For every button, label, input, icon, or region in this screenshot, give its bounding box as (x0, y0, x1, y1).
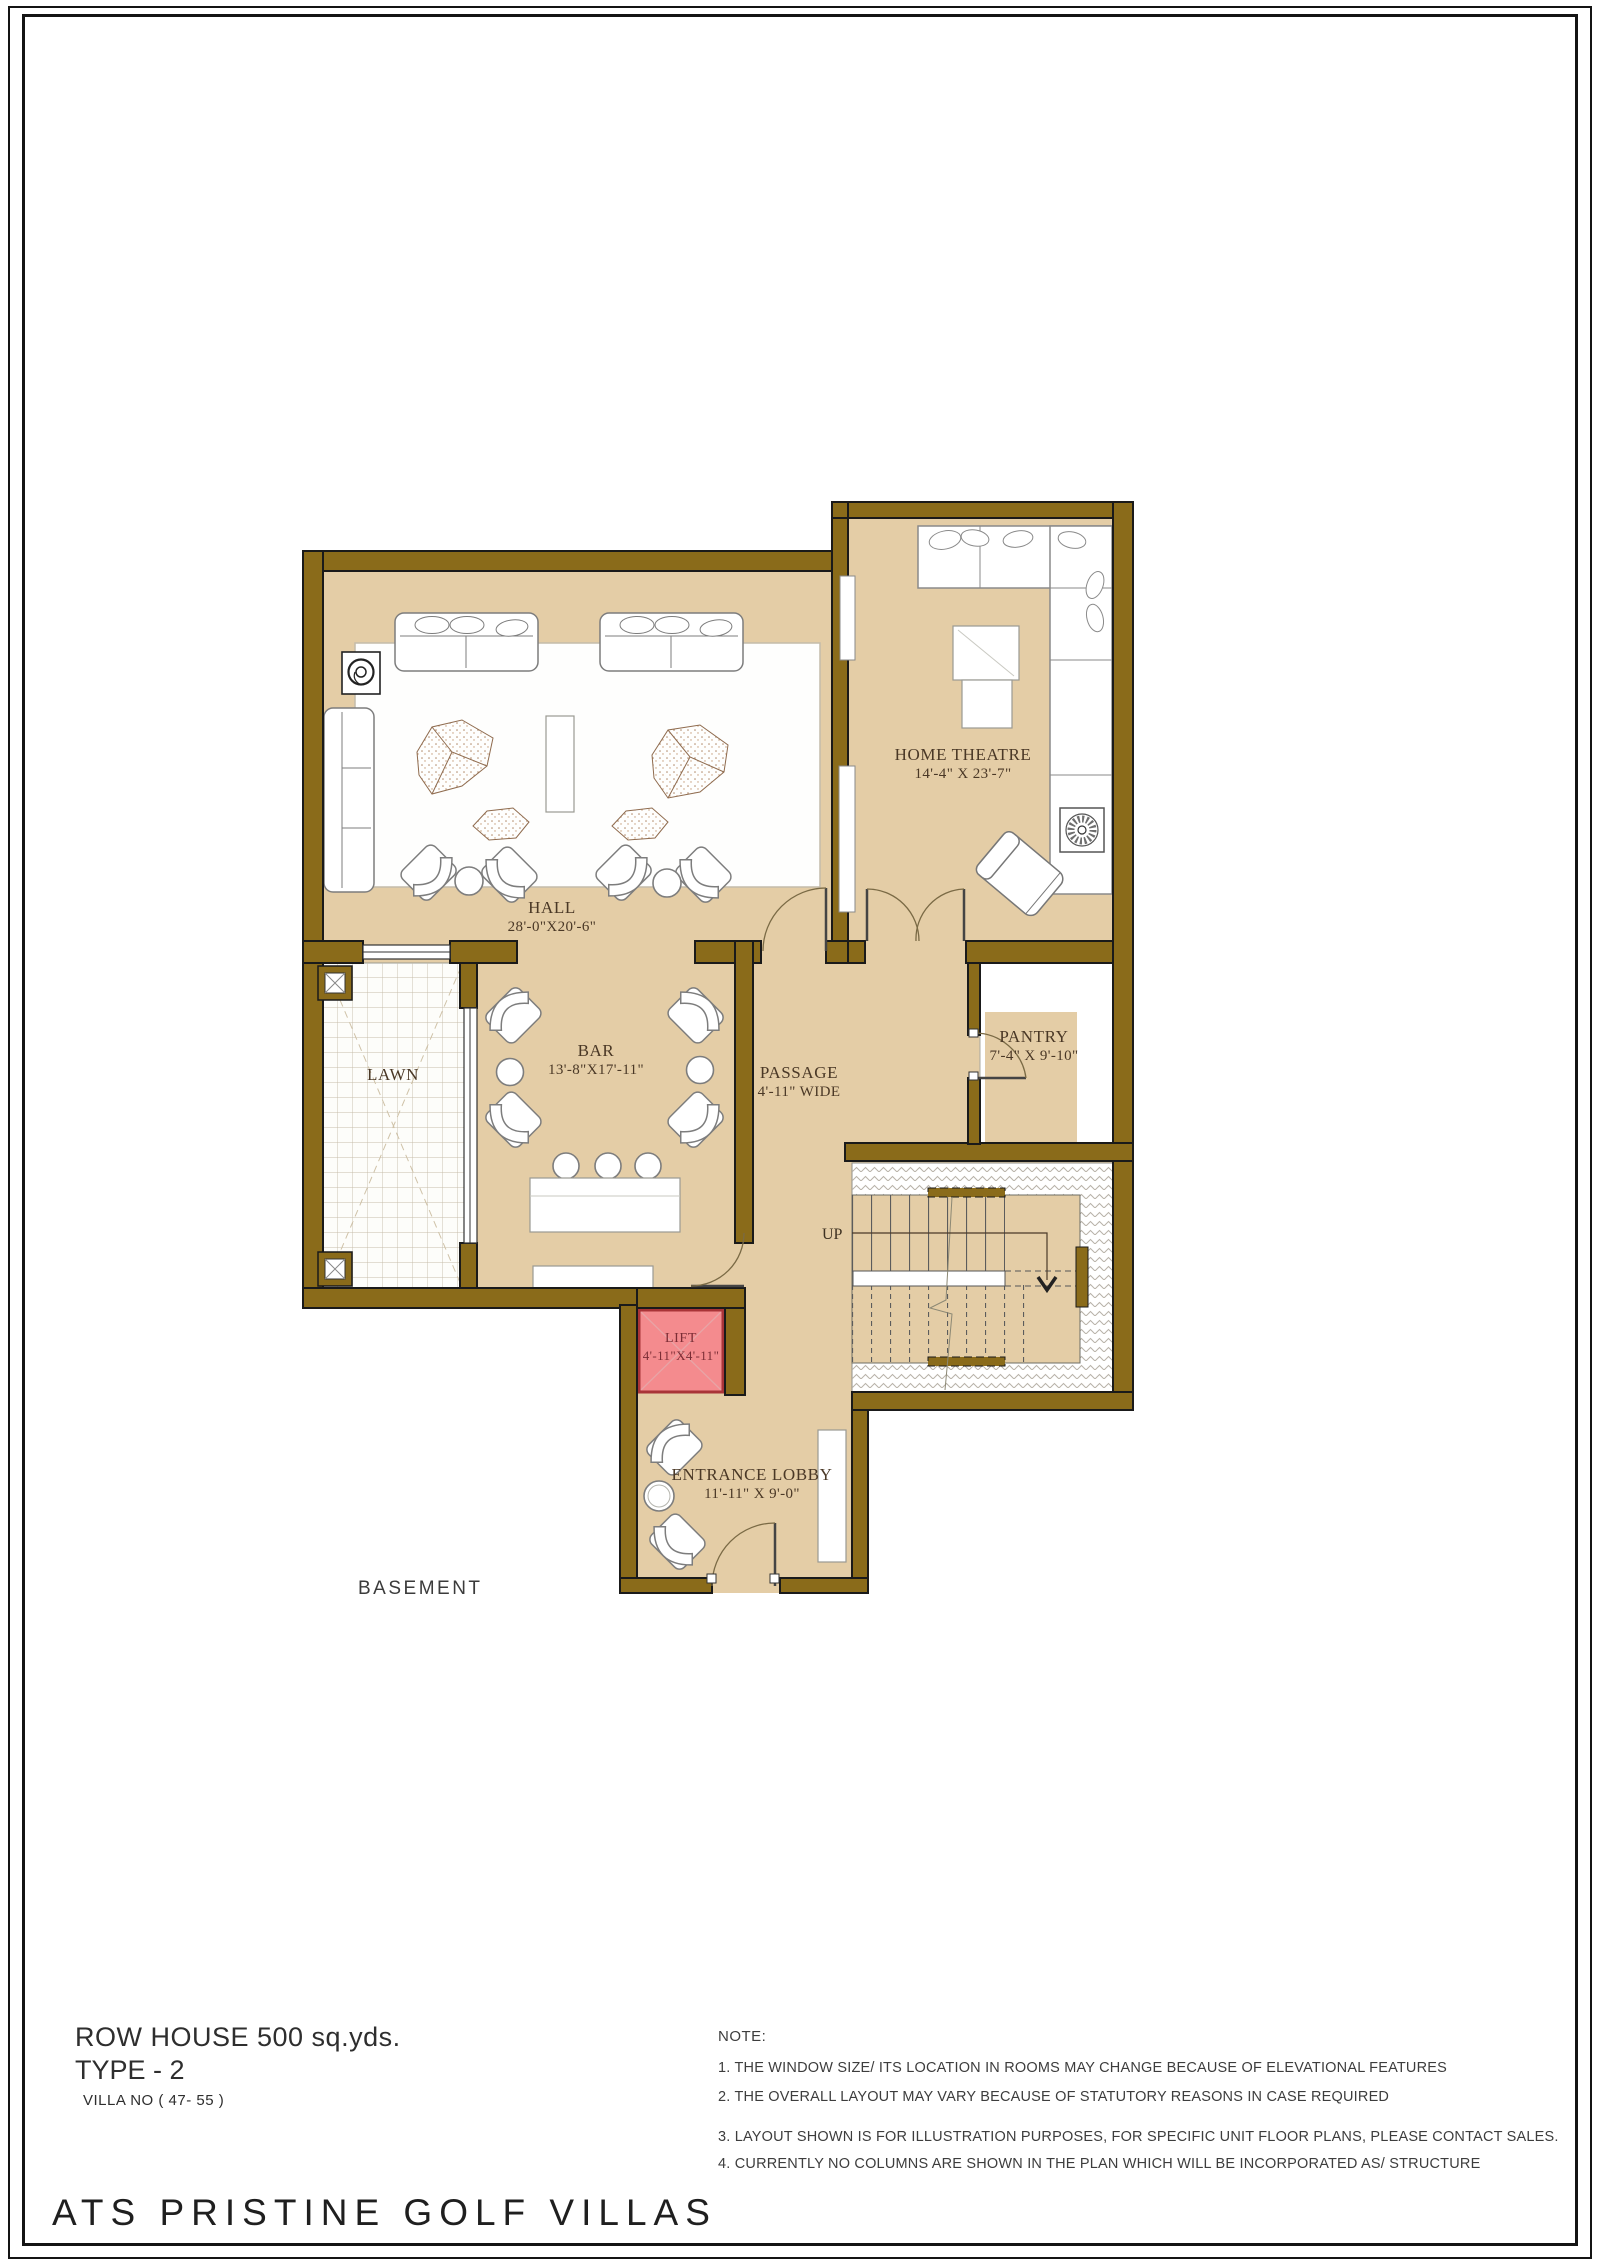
fan-icon (1060, 808, 1104, 852)
project-title: ATS PRISTINE GOLF VILLAS (52, 2192, 717, 2234)
window-icon (363, 945, 450, 959)
hall-label: HALL 28'-0"X20'-6" (508, 897, 597, 937)
floor-name-label: BASEMENT (358, 1578, 483, 1600)
notes-block: NOTE: 1. THE WINDOW SIZE/ ITS LOCATION I… (718, 2028, 1578, 2172)
hall-console-table (546, 716, 574, 812)
bar-back-counter (533, 1266, 653, 1288)
bar-counter (530, 1178, 680, 1232)
side-table-icon (455, 867, 483, 895)
stairs-up-label: UP (822, 1226, 842, 1244)
staircase (852, 1188, 1088, 1390)
lawn-label: LAWN (367, 1064, 419, 1085)
notes-heading: NOTE: (718, 2028, 1578, 2045)
plan-type: TYPE - 2 (75, 2055, 401, 2086)
speaker-icon (342, 652, 380, 694)
stair-landing-tread (853, 1271, 1005, 1286)
bar-stool-icon (595, 1153, 621, 1179)
sofa-icon (395, 613, 538, 671)
home-theatre-label: HOME THEATRE 14'-4" X 23'-7" (895, 744, 1032, 784)
entrance-lobby-label: ENTRANCE LOBBY 11'-11" X 9'-0" (672, 1464, 833, 1504)
note-item: 3. LAYOUT SHOWN IS FOR ILLUSTRATION PURP… (718, 2129, 1578, 2145)
column-post-icon (318, 1252, 352, 1286)
column-post-icon (318, 966, 352, 1000)
title-block: ROW HOUSE 500 sq.yds. TYPE - 2 VILLA NO … (75, 2022, 401, 2109)
plan-title: ROW HOUSE 500 sq.yds. (75, 2022, 401, 2053)
passage-label: PASSAGE 4'-11" WIDE (758, 1062, 841, 1102)
villa-number: VILLA NO ( 47- 55 ) (83, 2092, 401, 2109)
tv-console-icon (953, 626, 1019, 728)
floor-plan-drawing (0, 0, 1600, 2263)
side-table-icon (653, 869, 681, 897)
note-item: 2. THE OVERALL LAYOUT MAY VARY BECAUSE O… (718, 2089, 1578, 2105)
lawn-floor (323, 963, 464, 1288)
note-item: 4. CURRENTLY NO COLUMNS ARE SHOWN IN THE… (718, 2156, 1578, 2172)
bar-label: BAR 13'-8"X17'-11" (548, 1040, 644, 1080)
drawing-sheet: HALL 28'-0"X20'-6" HOME THEATRE 14'-4" X… (0, 0, 1600, 2263)
pantry-label: PANTRY 7'-4" X 9'-10" (989, 1026, 1078, 1066)
bar-stool-icon (635, 1153, 661, 1179)
lift-label: LIFT 4'-11"X4'-11" (643, 1330, 720, 1364)
side-table-icon (687, 1057, 714, 1084)
sofa-icon (324, 708, 374, 892)
window-icon (464, 1008, 477, 1243)
side-table-icon (497, 1059, 524, 1086)
wall-niche (840, 576, 855, 660)
wall-niche (839, 766, 855, 912)
sofa-icon (600, 613, 743, 671)
note-item: 1. THE WINDOW SIZE/ ITS LOCATION IN ROOM… (718, 2060, 1578, 2076)
bar-stool-icon (553, 1153, 579, 1179)
